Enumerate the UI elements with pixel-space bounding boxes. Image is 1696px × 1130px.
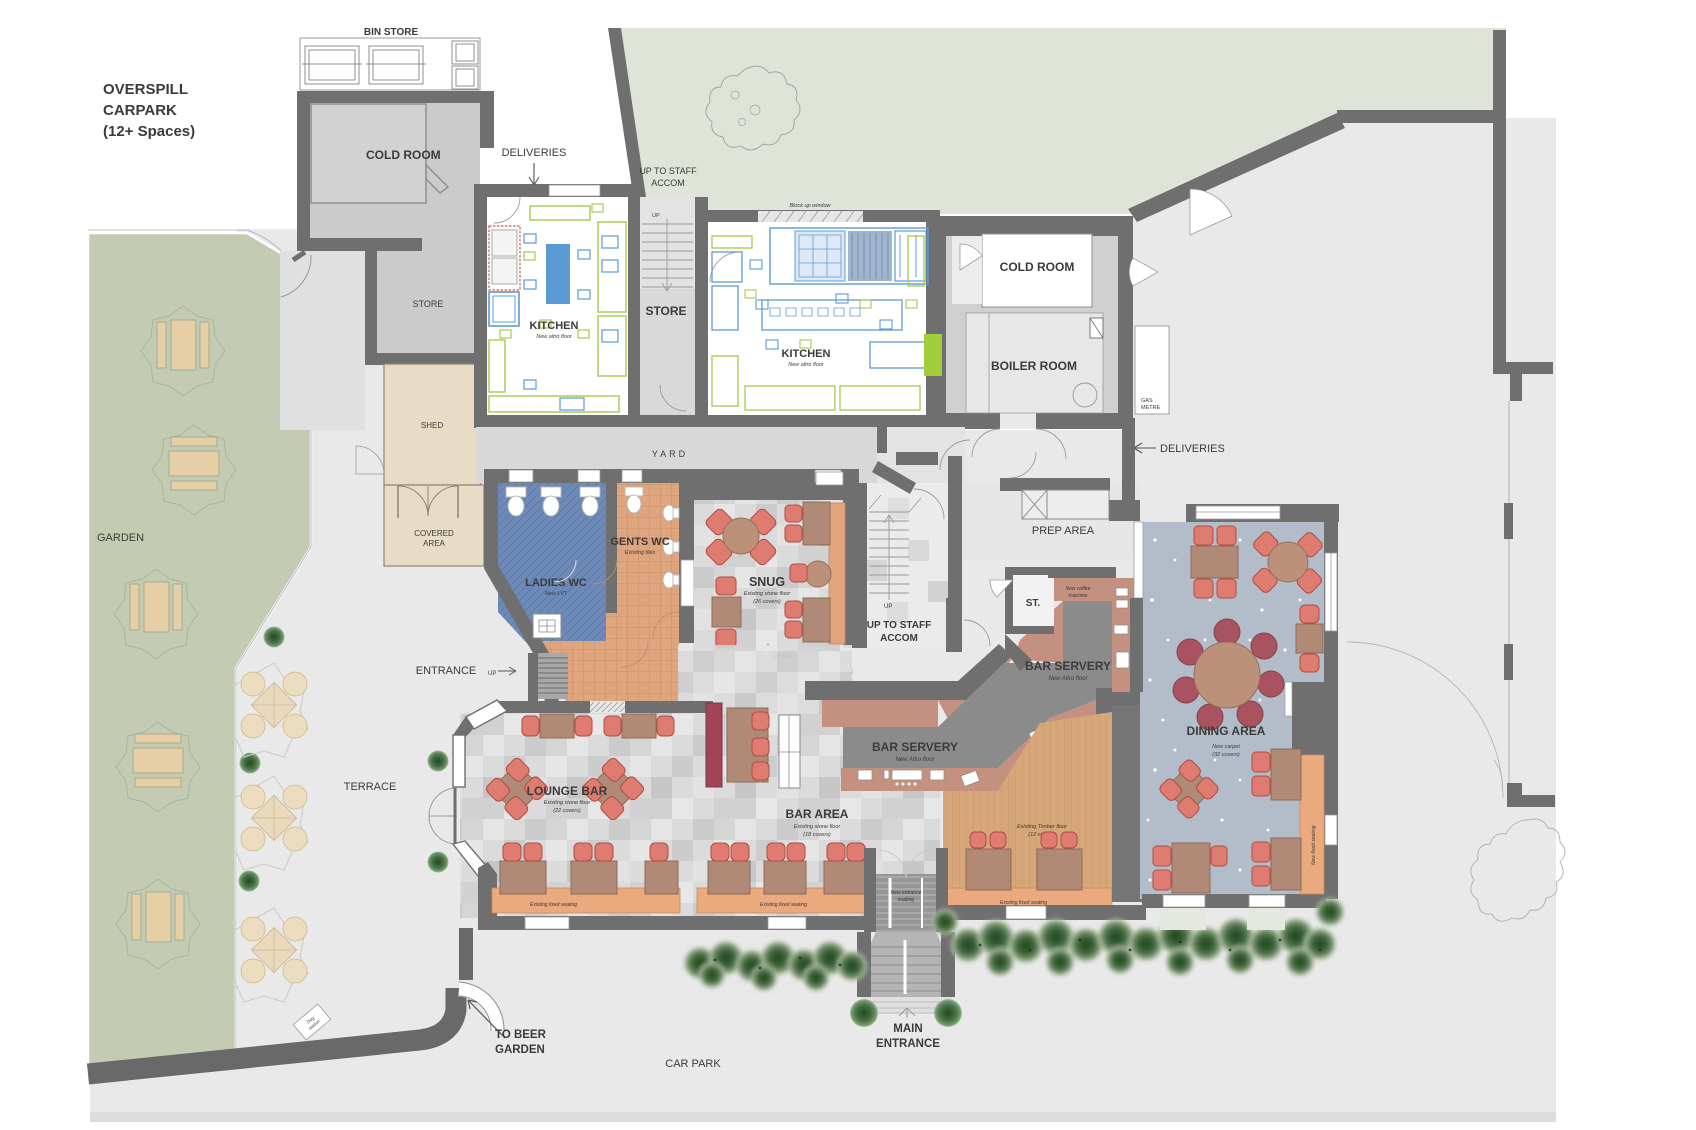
svg-text:New Altro floor: New Altro floor	[1048, 676, 1088, 682]
svg-text:STORE: STORE	[645, 304, 686, 318]
svg-text:BAR SERVERY: BAR SERVERY	[872, 740, 958, 754]
svg-text:DELIVERIES: DELIVERIES	[502, 147, 567, 159]
svg-text:UP TO STAFF: UP TO STAFF	[639, 166, 697, 176]
svg-text:UP TO STAFF: UP TO STAFF	[867, 620, 931, 631]
svg-text:(26 covers): (26 covers)	[753, 599, 781, 605]
svg-text:ACCOM: ACCOM	[651, 178, 685, 188]
svg-text:ACCOM: ACCOM	[880, 633, 918, 644]
svg-text:UP: UP	[884, 604, 892, 610]
svg-text:DINING AREA: DINING AREA	[1187, 724, 1266, 738]
svg-text:New carpet: New carpet	[1212, 744, 1240, 750]
svg-text:New entrance: New entrance	[891, 890, 922, 896]
svg-text:(12+ Spaces): (12+ Spaces)	[103, 123, 195, 140]
svg-text:Existing Timber floor: Existing Timber floor	[1017, 824, 1068, 830]
svg-text:COLD ROOM: COLD ROOM	[1000, 260, 1075, 274]
svg-text:SHED: SHED	[421, 421, 443, 430]
svg-text:Existing stone floor: Existing stone floor	[794, 824, 842, 830]
svg-text:(22 covers): (22 covers)	[553, 808, 581, 814]
svg-text:ENTRANCE: ENTRANCE	[416, 665, 477, 677]
svg-text:New LVT: New LVT	[545, 591, 568, 597]
svg-text:YARD: YARD	[652, 449, 688, 459]
svg-text:ENTRANCE: ENTRANCE	[876, 1038, 940, 1050]
svg-text:TO BEER: TO BEER	[495, 1029, 547, 1041]
svg-text:LADIES WC: LADIES WC	[525, 577, 587, 589]
svg-text:BOILER ROOM: BOILER ROOM	[991, 359, 1077, 373]
svg-text:UP: UP	[652, 213, 660, 219]
svg-text:BAR AREA: BAR AREA	[786, 807, 849, 821]
svg-text:COVERED: COVERED	[414, 529, 454, 538]
svg-text:New altro floor: New altro floor	[536, 334, 573, 340]
svg-text:Existing fixed seating: Existing fixed seating	[530, 902, 577, 908]
svg-text:OVERSPILL: OVERSPILL	[103, 81, 188, 98]
svg-text:New fixed seating: New fixed seating	[1311, 825, 1317, 865]
svg-text:LOUNGE BAR: LOUNGE BAR	[527, 784, 608, 798]
svg-text:GARDEN: GARDEN	[495, 1044, 545, 1056]
svg-text:BIN STORE: BIN STORE	[364, 27, 419, 38]
svg-text:CARPARK: CARPARK	[103, 102, 177, 119]
svg-text:Existing stone floor: Existing stone floor	[544, 800, 592, 806]
svg-text:GAS: GAS	[1141, 398, 1153, 404]
svg-text:KITCHEN: KITCHEN	[782, 348, 831, 360]
svg-text:DELIVERIES: DELIVERIES	[1160, 443, 1225, 455]
svg-text:PREP AREA: PREP AREA	[1032, 525, 1095, 537]
svg-text:KITCHEN: KITCHEN	[530, 320, 579, 332]
svg-text:STORE: STORE	[413, 299, 444, 309]
svg-text:COLD ROOM: COLD ROOM	[366, 148, 441, 162]
svg-text:New Altro floor: New Altro floor	[895, 757, 935, 763]
svg-text:New coffee: New coffee	[1065, 586, 1090, 592]
svg-text:matting: matting	[898, 897, 915, 903]
svg-text:(18 covers): (18 covers)	[803, 832, 831, 838]
svg-text:GENTS WC: GENTS WC	[610, 536, 669, 548]
svg-text:BAR SERVERY: BAR SERVERY	[1025, 659, 1111, 673]
svg-text:(32 covers): (32 covers)	[1212, 752, 1240, 758]
svg-text:ST.: ST.	[1026, 598, 1041, 609]
svg-text:METRE: METRE	[1141, 405, 1161, 411]
svg-text:Existing fixed seating: Existing fixed seating	[760, 902, 807, 908]
svg-text:SNUG: SNUG	[749, 575, 785, 589]
svg-text:Existing tiles: Existing tiles	[625, 550, 656, 556]
svg-text:Block up window: Block up window	[790, 203, 832, 209]
svg-text:GARDEN: GARDEN	[97, 532, 144, 544]
svg-text:TERRACE: TERRACE	[344, 781, 397, 793]
svg-text:MAIN: MAIN	[893, 1023, 922, 1035]
svg-text:machine: machine	[1069, 593, 1088, 599]
svg-text:UP: UP	[488, 671, 496, 677]
svg-text:CAR PARK: CAR PARK	[665, 1058, 721, 1070]
svg-text:AREA: AREA	[423, 539, 445, 548]
svg-text:Existing stone floor: Existing stone floor	[744, 591, 792, 597]
svg-text:New altro floor: New altro floor	[788, 362, 825, 368]
